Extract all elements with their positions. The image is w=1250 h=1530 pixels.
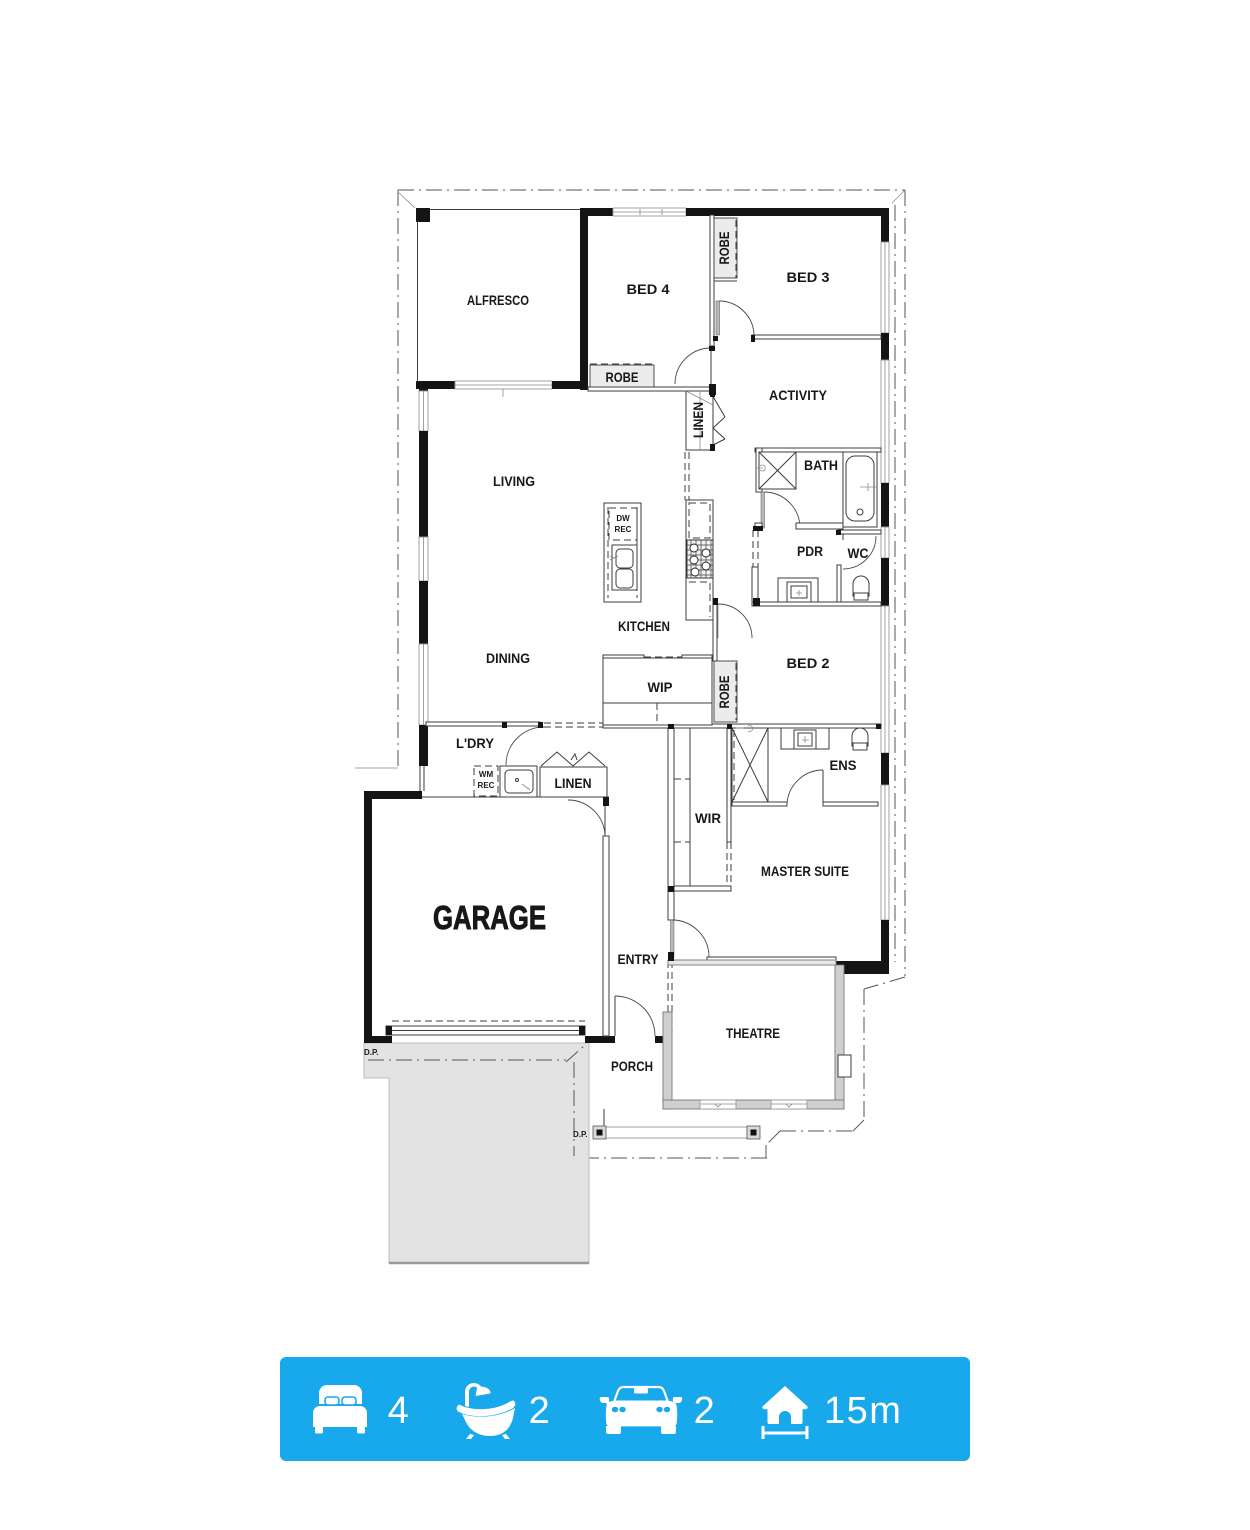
svg-text:REC: REC: [615, 525, 632, 534]
svg-text:ALFRESCO: ALFRESCO: [467, 292, 529, 308]
svg-text:D.P.: D.P.: [364, 1048, 379, 1057]
svg-text:ROBE: ROBE: [606, 369, 639, 385]
svg-text:BED 2: BED 2: [787, 655, 830, 671]
svg-text:BATH: BATH: [804, 457, 838, 473]
svg-text:KITCHEN: KITCHEN: [618, 618, 670, 634]
svg-text:WC: WC: [848, 545, 869, 561]
svg-text:PDR: PDR: [797, 543, 823, 559]
svg-text:THEATRE: THEATRE: [726, 1025, 780, 1041]
svg-text:D.P.: D.P.: [573, 1130, 588, 1139]
svg-text:GARAGE: GARAGE: [433, 899, 546, 936]
svg-text:PORCH: PORCH: [611, 1058, 653, 1074]
svg-text:2: 2: [529, 1390, 552, 1432]
svg-text:DW: DW: [616, 514, 630, 523]
svg-text:WIP: WIP: [648, 679, 673, 695]
svg-text:L'DRY: L'DRY: [456, 735, 495, 751]
svg-text:BED 3: BED 3: [787, 269, 830, 285]
svg-text:4: 4: [388, 1390, 411, 1432]
svg-text:BED 4: BED 4: [627, 281, 670, 297]
svg-text:ROBE: ROBE: [716, 232, 732, 265]
svg-text:ENTRY: ENTRY: [618, 951, 660, 967]
svg-text:15m: 15m: [824, 1390, 902, 1432]
svg-text:REC: REC: [478, 781, 495, 790]
svg-text:ACTIVITY: ACTIVITY: [769, 387, 828, 403]
svg-text:WM: WM: [479, 770, 494, 779]
svg-text:2: 2: [694, 1390, 717, 1432]
svg-text:LIVING: LIVING: [493, 473, 535, 489]
svg-text:DINING: DINING: [486, 650, 530, 666]
svg-text:LINEN: LINEN: [690, 402, 706, 438]
svg-text:ENS: ENS: [830, 757, 857, 773]
svg-text:LINEN: LINEN: [555, 775, 592, 791]
svg-text:MASTER SUITE: MASTER SUITE: [761, 863, 849, 879]
svg-text:WIR: WIR: [695, 810, 721, 826]
svg-text:ROBE: ROBE: [716, 676, 732, 709]
